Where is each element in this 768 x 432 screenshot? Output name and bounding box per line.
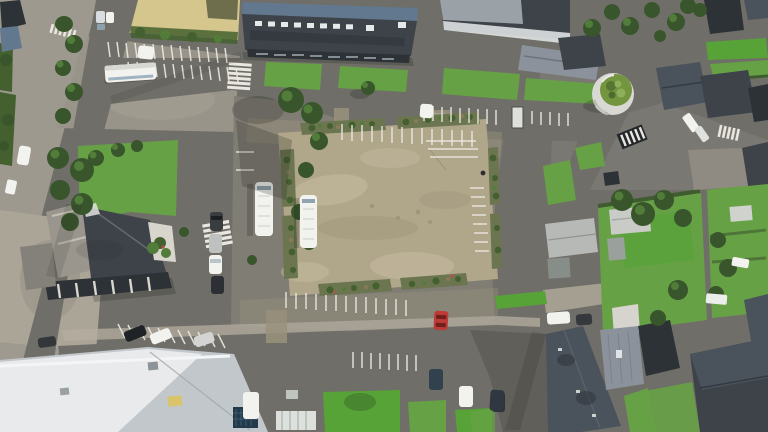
- bus-shelter: [512, 107, 523, 128]
- shrub: [147, 242, 159, 254]
- school-building: [242, 2, 418, 66]
- shrub: [247, 255, 257, 265]
- aerial-photo-frame: Aerial drone view of a small-town square…: [0, 0, 768, 432]
- roof-window: [168, 395, 183, 406]
- van-bottom: [243, 392, 259, 419]
- van-north-road: [420, 104, 434, 119]
- car-white-south: [459, 386, 473, 407]
- shed-white: [545, 218, 598, 258]
- car-dark-blue: [429, 369, 443, 390]
- aerial-photo: Aerial drone view of a small-town square…: [0, 0, 768, 432]
- scooter: [481, 171, 486, 176]
- car-red: [433, 311, 448, 331]
- metal-hall: [0, 347, 268, 432]
- coach-west-2: [294, 195, 317, 248]
- car-yard: [489, 390, 504, 412]
- coach-north: [103, 62, 156, 84]
- shrub: [179, 227, 189, 237]
